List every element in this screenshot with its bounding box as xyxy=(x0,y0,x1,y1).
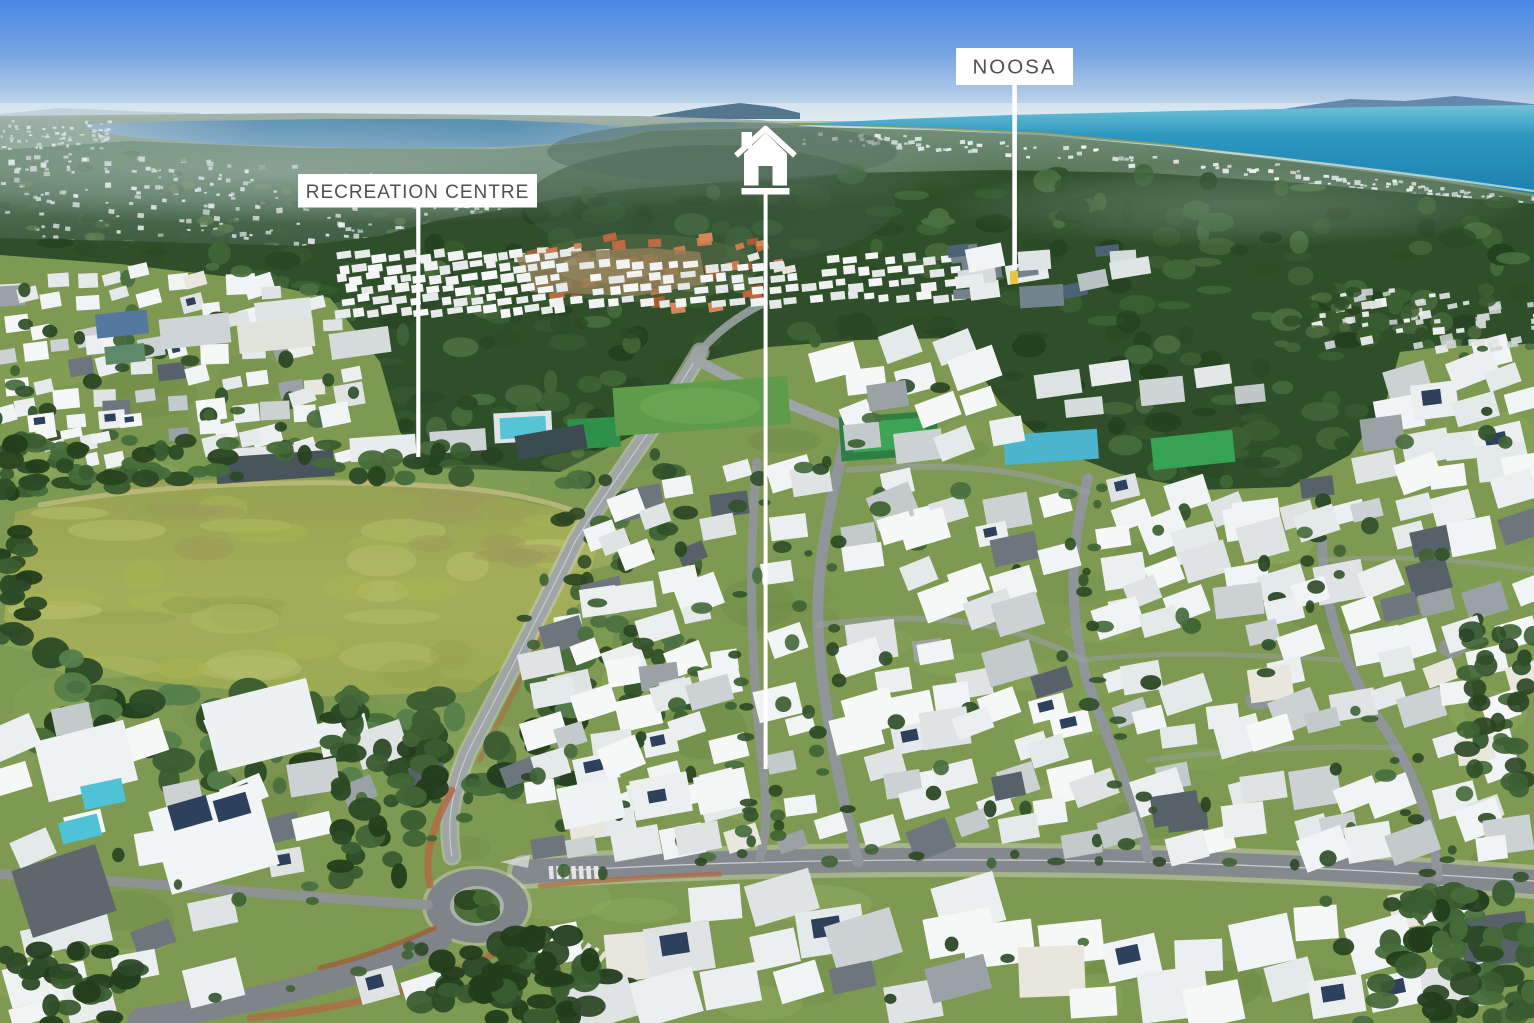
svg-text:NOOSA: NOOSA xyxy=(972,56,1056,79)
svg-text:RECREATION CENTRE: RECREATION CENTRE xyxy=(306,182,530,203)
